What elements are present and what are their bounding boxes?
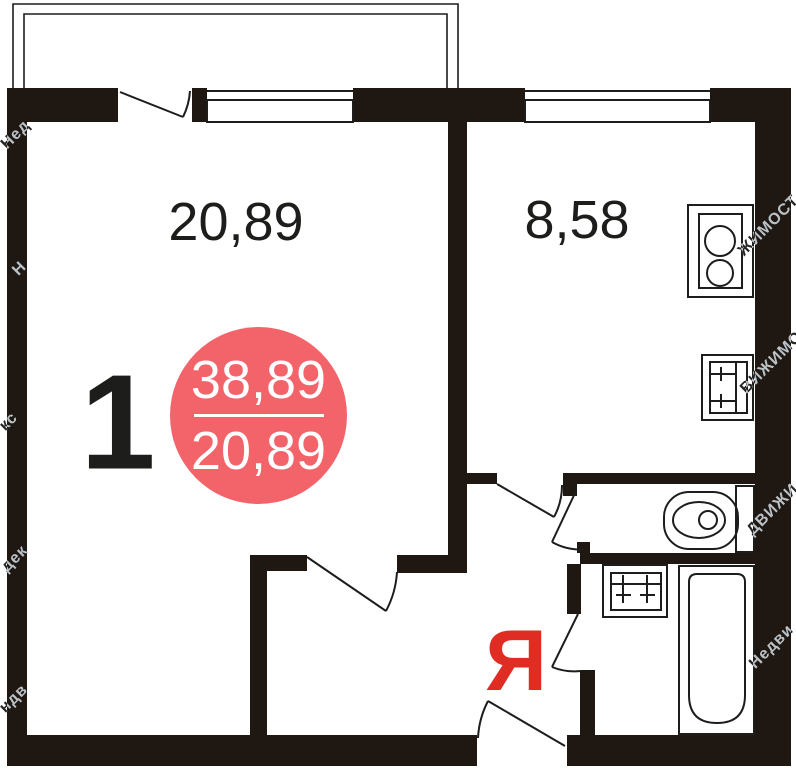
door-living-room	[307, 557, 397, 611]
door-kitchen	[497, 484, 562, 517]
living-room-area-label: 20,89	[168, 191, 303, 253]
toilet-icon	[664, 486, 754, 552]
window-living-room	[207, 91, 353, 122]
kitchen-area-label: 8,58	[524, 189, 629, 251]
area-badge-divider	[194, 414, 324, 417]
balcony-outline	[13, 4, 458, 88]
door-balcony	[120, 91, 190, 117]
door-bathroom	[552, 614, 581, 671]
window-kitchen	[525, 91, 710, 122]
total-area-value: 38,89	[191, 353, 326, 407]
living-area-value: 20,89	[191, 424, 326, 478]
door-wc	[552, 491, 587, 549]
area-badge: 38,89 20,89	[170, 327, 347, 504]
bathtub-icon	[679, 566, 754, 734]
floor-plan: 20,89 8,58 1 38,89 20,89 Я Нед Н кс дек …	[0, 0, 796, 768]
yandex-logo: Я	[485, 618, 547, 704]
room-count-label: 1	[80, 355, 155, 490]
bathroom-sink-icon	[603, 565, 667, 617]
